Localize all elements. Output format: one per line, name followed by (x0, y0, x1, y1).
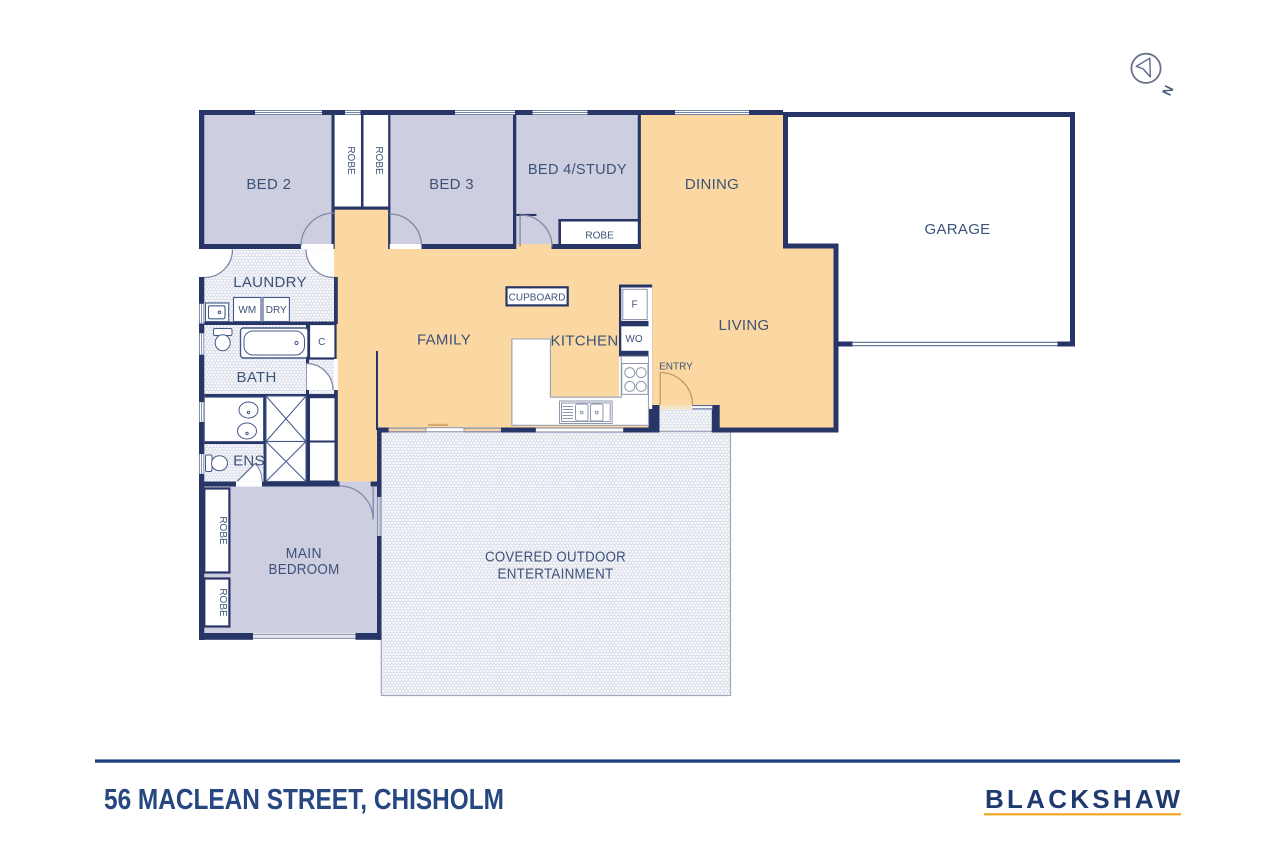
svg-text:ROBE: ROBE (373, 146, 384, 175)
svg-text:COVERED OUTDOOR: COVERED OUTDOOR (485, 549, 626, 566)
svg-text:BEDROOM: BEDROOM (269, 561, 340, 578)
svg-text:CUPBOARD: CUPBOARD (509, 293, 566, 304)
svg-text:BED 4/STUDY: BED 4/STUDY (528, 161, 627, 178)
svg-text:ROBE: ROBE (585, 231, 614, 242)
svg-text:ENTERTAINMENT: ENTERTAINMENT (498, 566, 614, 583)
svg-text:DINING: DINING (685, 176, 739, 193)
svg-text:KITCHEN: KITCHEN (551, 333, 619, 350)
svg-text:ENS: ENS (233, 453, 265, 470)
svg-text:MAIN: MAIN (286, 545, 322, 562)
svg-text:WO: WO (625, 334, 642, 345)
svg-text:ENTRY: ENTRY (659, 362, 693, 373)
svg-text:ROBE: ROBE (217, 588, 228, 617)
svg-text:LAUNDRY: LAUNDRY (233, 274, 307, 291)
svg-text:WM: WM (238, 305, 256, 316)
svg-text:LIVING: LIVING (719, 317, 770, 334)
svg-text:BED 3: BED 3 (429, 176, 474, 193)
svg-text:DRY: DRY (266, 305, 287, 316)
svg-text:BATH: BATH (237, 369, 277, 386)
svg-text:FAMILY: FAMILY (417, 332, 471, 349)
svg-text:GARAGE: GARAGE (925, 221, 991, 238)
svg-text:C: C (318, 337, 325, 348)
svg-text:56 MACLEAN STREET, CHISHOLM: 56 MACLEAN STREET, CHISHOLM (104, 784, 504, 816)
svg-text:BLACKSHAW: BLACKSHAW (985, 784, 1180, 814)
svg-text:ROBE: ROBE (345, 146, 356, 175)
svg-text:BED 2: BED 2 (246, 176, 291, 193)
svg-text:N: N (1159, 83, 1177, 98)
svg-text:F: F (631, 300, 637, 311)
svg-text:ROBE: ROBE (217, 516, 228, 545)
